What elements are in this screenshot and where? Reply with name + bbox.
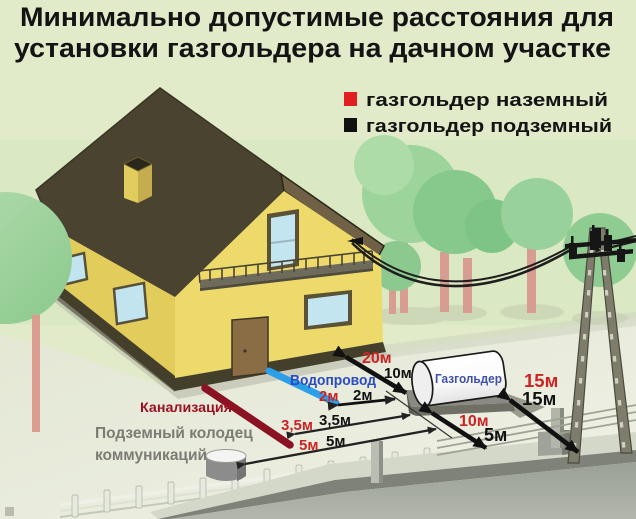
svg-text:коммуникаций: коммуникаций xyxy=(95,447,207,464)
svg-text:газгольдер наземный: газгольдер наземный xyxy=(366,89,608,110)
svg-text:2м: 2м xyxy=(319,388,338,405)
svg-text:15м: 15м xyxy=(522,388,556,409)
svg-text:Подземный колодец: Подземный колодец xyxy=(95,425,253,442)
svg-text:3,5м: 3,5м xyxy=(281,417,313,434)
svg-text:газгольдер подземный: газгольдер подземный xyxy=(366,115,612,136)
svg-text:5м: 5м xyxy=(326,433,345,450)
svg-text:Газгольдер: Газгольдер xyxy=(435,371,502,386)
svg-text:Минимально допустимые расстоян: Минимально допустимые расстояния для xyxy=(20,2,614,32)
svg-text:установки газгольдера на дачно: установки газгольдера на дачном участке xyxy=(14,33,611,63)
svg-text:2м: 2м xyxy=(353,387,372,404)
svg-text:5м: 5м xyxy=(299,437,318,454)
svg-text:5м: 5м xyxy=(484,425,507,445)
svg-text:10м: 10м xyxy=(384,365,412,382)
svg-text:3,5м: 3,5м xyxy=(319,412,351,429)
svg-text:Канализация: Канализация xyxy=(140,400,232,415)
